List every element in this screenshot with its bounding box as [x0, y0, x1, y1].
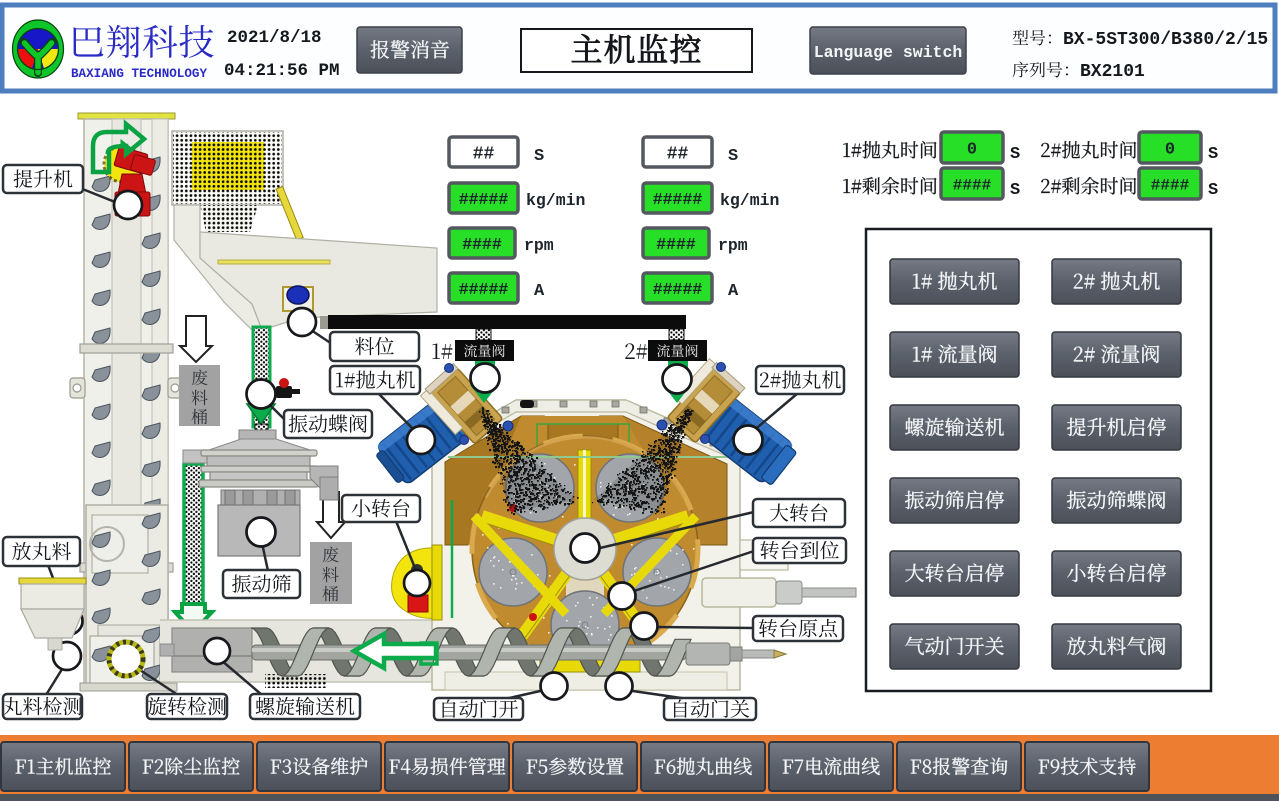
svg-text:2021/8/18: 2021/8/18: [227, 28, 322, 48]
svg-text:##: ##: [667, 144, 689, 164]
svg-text:S: S: [1010, 181, 1020, 200]
svg-text:BX2101: BX2101: [1080, 62, 1145, 82]
svg-text:0: 0: [967, 141, 977, 160]
svg-text:#####: #####: [653, 190, 703, 209]
svg-text:rpm: rpm: [718, 236, 748, 255]
svg-text:0: 0: [1165, 141, 1175, 160]
svg-text:#####: #####: [459, 280, 509, 299]
svg-text:####: ####: [656, 235, 696, 254]
svg-text:S: S: [1010, 145, 1020, 164]
svg-text:04:21:56 PM: 04:21:56 PM: [224, 61, 340, 81]
svg-text:####: ####: [1151, 176, 1190, 194]
svg-text:kg/min: kg/min: [526, 191, 585, 210]
svg-text:A: A: [534, 282, 545, 301]
svg-text:A: A: [728, 282, 739, 301]
svg-text:BX-5ST300/B380/2/15: BX-5ST300/B380/2/15: [1063, 30, 1268, 50]
svg-text:Language switch: Language switch: [814, 43, 963, 62]
svg-text:S: S: [1208, 145, 1218, 164]
svg-text:#####: #####: [653, 280, 703, 299]
svg-text:S: S: [728, 147, 738, 166]
svg-text:rpm: rpm: [524, 236, 554, 255]
svg-text:S: S: [534, 147, 544, 166]
svg-text:S: S: [1208, 181, 1218, 200]
svg-text:####: ####: [953, 176, 992, 194]
svg-text:BAXIANG TECHNOLOGY: BAXIANG TECHNOLOGY: [71, 67, 207, 81]
svg-text:kg/min: kg/min: [720, 191, 779, 210]
svg-text:####: ####: [462, 235, 502, 254]
svg-text:#####: #####: [459, 190, 509, 209]
svg-text:##: ##: [473, 144, 495, 164]
